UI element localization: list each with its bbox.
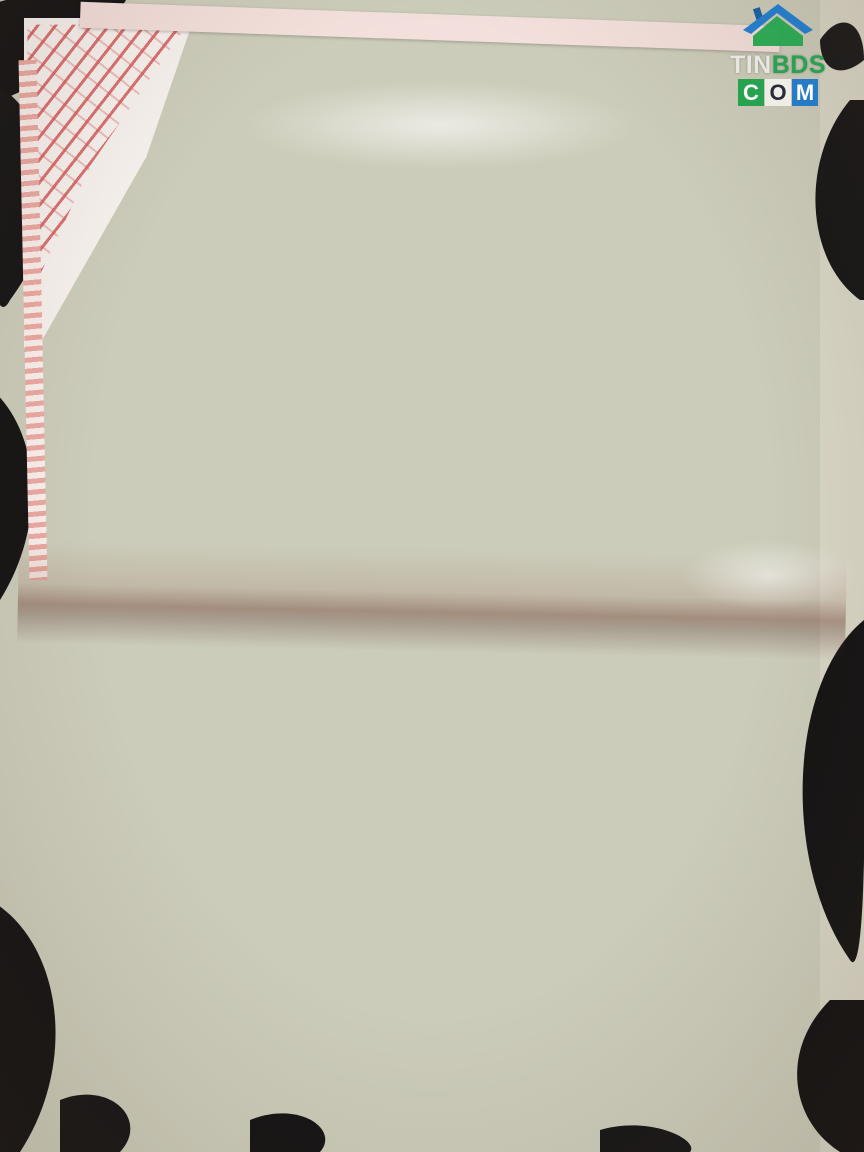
logo-tin: TIN — [730, 51, 772, 79]
logo-block-c: C — [738, 79, 764, 106]
house-icon — [741, 4, 815, 46]
tinbds-watermark: TINBDS C O M — [718, 4, 838, 106]
logo-wordmark: TINBDS — [718, 53, 838, 78]
logo-block-m: M — [792, 79, 818, 106]
logo-block-o: O — [765, 79, 791, 106]
logo-bds: BDS — [772, 51, 826, 79]
logo-com-blocks: C O M — [718, 79, 838, 106]
land-certificate-photo: III. Sơ đồ thửa đất, nhà ở và tài sản kh… — [0, 0, 864, 1152]
